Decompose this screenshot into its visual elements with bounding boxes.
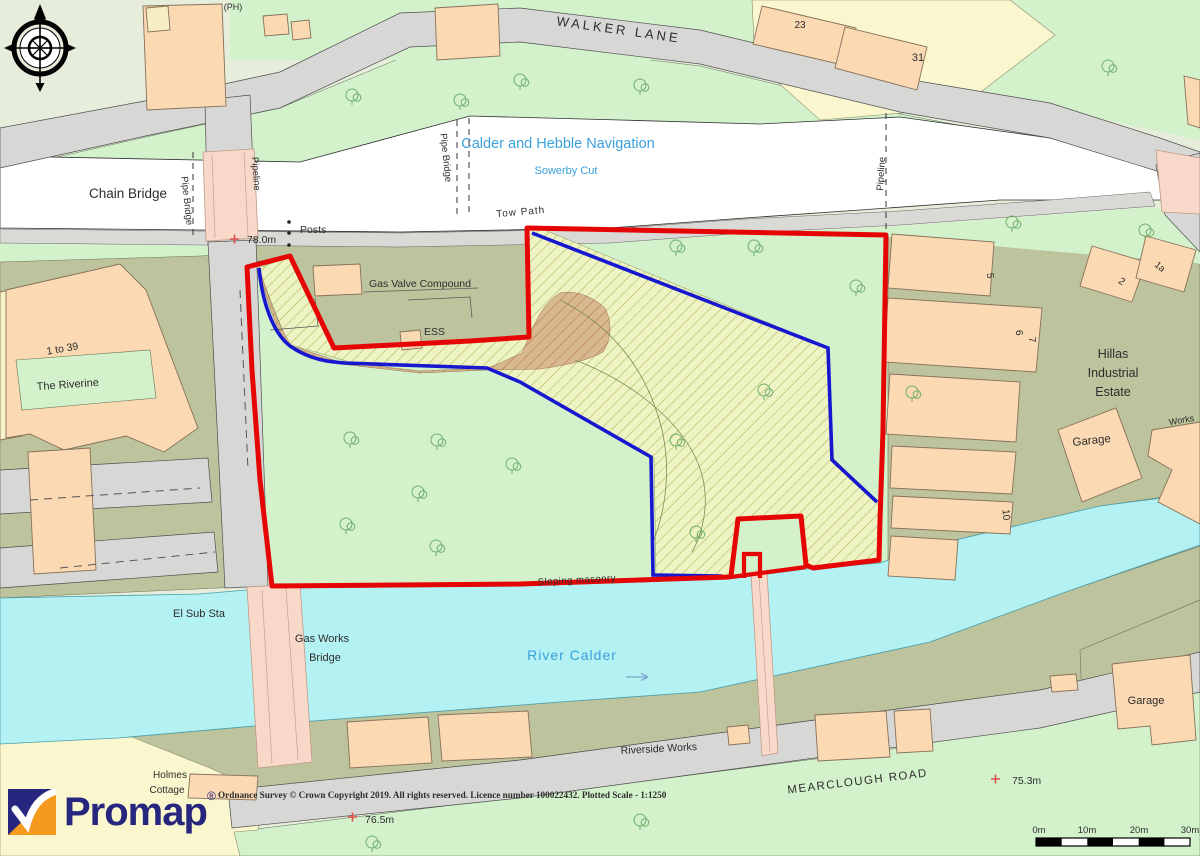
- house-number-31: 31: [912, 52, 924, 64]
- holmes-label: Holmes: [153, 770, 187, 781]
- compound-building: [313, 264, 362, 296]
- warehouse-5: [888, 234, 994, 296]
- sowerby-cut-label: Sowerby Cut: [535, 165, 598, 177]
- promap-logo: Promap®: [8, 789, 216, 835]
- canal-name-label: Calder and Hebble Navigation: [461, 136, 654, 152]
- hillas-label-2: Industrial: [1088, 366, 1139, 380]
- house-number-23: 23: [794, 20, 806, 31]
- garage-label-south: Garage: [1128, 695, 1165, 707]
- river-calder-label: River Calder: [527, 647, 617, 663]
- spot-height-75: 75.3m: [1012, 775, 1041, 787]
- ess-building: [400, 330, 422, 350]
- posts-label: Posts: [300, 224, 326, 236]
- el-sub-sta-label: El Sub Sta: [173, 608, 226, 620]
- map-viewport[interactable]: (PH) WALKER LANE 23 31 Chain Bridge Pipe…: [0, 0, 1200, 856]
- pipeline-label-east: Pipeline: [875, 157, 888, 191]
- scale-tick-30: 30m: [1181, 825, 1200, 836]
- post-dot: [287, 243, 291, 247]
- promap-logo-icon: [8, 789, 56, 835]
- registered-mark: ®: [207, 789, 216, 803]
- copyright-text: Ordnance Survey © Crown Copyright 2019. …: [218, 790, 667, 800]
- spot-height-78: 78.0m: [247, 234, 276, 246]
- chain-bridge-label: Chain Bridge: [89, 186, 167, 201]
- post-dot: [287, 220, 291, 224]
- post-dot: [287, 231, 291, 235]
- spot-height-76: 76.5m: [365, 814, 394, 826]
- promap-wordmark: Promap: [64, 790, 207, 834]
- ess-label: ESS: [424, 326, 445, 338]
- scale-tick-10: 10m: [1078, 825, 1097, 836]
- gas-works-bridge-label-1: Gas Works: [295, 633, 350, 645]
- hillas-label-1: Hillas: [1098, 347, 1129, 361]
- scale-tick-20: 20m: [1130, 825, 1149, 836]
- pipeline-label-west: Pipeline: [249, 157, 262, 191]
- gas-valve-compound-label: Gas Valve Compound: [369, 278, 471, 290]
- ph-label: (PH): [224, 2, 243, 12]
- map-canvas[interactable]: (PH) WALKER LANE 23 31 Chain Bridge Pipe…: [0, 0, 1200, 856]
- warehouse-10: [891, 496, 1013, 534]
- gas-works-bridge-label-2: Bridge: [309, 652, 341, 664]
- hillas-label-3: Estate: [1095, 385, 1130, 399]
- unit-10-label: 10: [1000, 509, 1012, 521]
- gas-works-bridge: [247, 584, 312, 768]
- scale-tick-0: 0m: [1032, 825, 1045, 836]
